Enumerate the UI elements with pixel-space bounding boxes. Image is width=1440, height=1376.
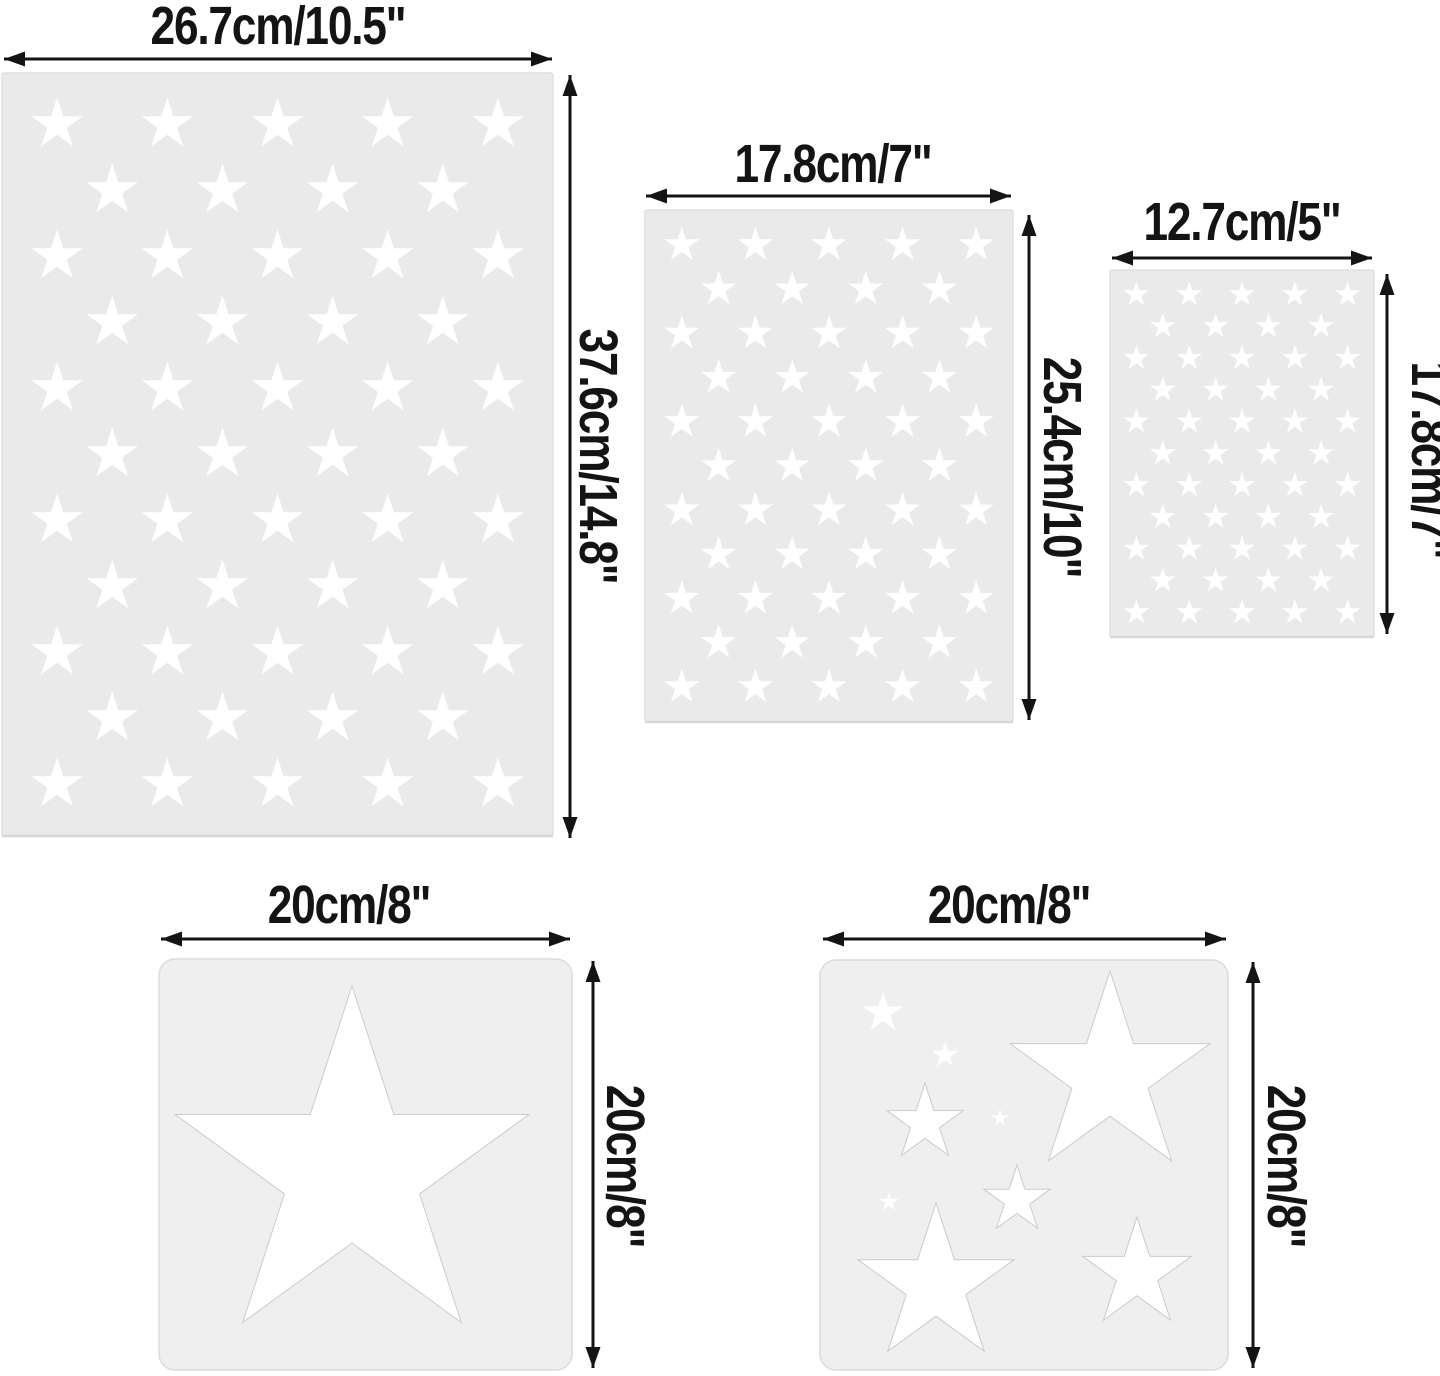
- arrowhead: [823, 932, 844, 947]
- flag-stencil-large-width-label: 26.7cm/10.5": [151, 0, 406, 53]
- arrowhead: [1246, 962, 1261, 983]
- arrowhead: [563, 817, 578, 838]
- flag-stencil-large-height-label: 37.6cm/14.8": [571, 329, 625, 584]
- multi-star-stencil-width-label: 20cm/8": [928, 878, 1091, 932]
- arrowhead: [1022, 699, 1037, 720]
- single-star-stencil-height-label: 20cm/8": [598, 1085, 652, 1248]
- arrowhead: [1380, 274, 1395, 295]
- flag-stencil-small-height-label: 17.8cm/7": [1403, 361, 1440, 558]
- single-star-stencil-width-label: 20cm/8": [268, 878, 431, 932]
- flag-stencil-medium-width-label: 17.8cm/7": [734, 137, 931, 191]
- arrowhead: [161, 932, 182, 947]
- arrowhead: [1246, 1347, 1261, 1368]
- arrowhead: [646, 189, 667, 204]
- arrowhead: [1351, 251, 1372, 266]
- flag-stencil-small-width-label: 12.7cm/5": [1143, 195, 1340, 249]
- flag-stencil-medium-height-label: 25.4cm/10": [1035, 357, 1089, 577]
- arrowhead: [1205, 932, 1226, 947]
- flag-stencil-small-sheet: [1110, 270, 1374, 637]
- flag-stencil-medium-sheet: [645, 210, 1013, 722]
- arrowhead: [1380, 613, 1395, 634]
- multi-star-stencil-height-label: 20cm/8": [1259, 1085, 1313, 1248]
- stencil-dimensions-diagram: 26.7cm/10.5" 37.6cm/14.8" 17.8cm/7" 25.4…: [0, 0, 1440, 1376]
- arrowhead: [1112, 251, 1133, 266]
- flag-stencil-large-sheet: [2, 73, 553, 836]
- arrowhead: [586, 961, 601, 982]
- arrowhead: [1022, 215, 1037, 236]
- arrowhead: [531, 52, 552, 67]
- arrowhead: [4, 52, 25, 67]
- arrowhead: [990, 189, 1011, 204]
- arrowhead: [563, 75, 578, 96]
- arrowhead: [586, 1347, 601, 1368]
- arrowhead: [549, 932, 570, 947]
